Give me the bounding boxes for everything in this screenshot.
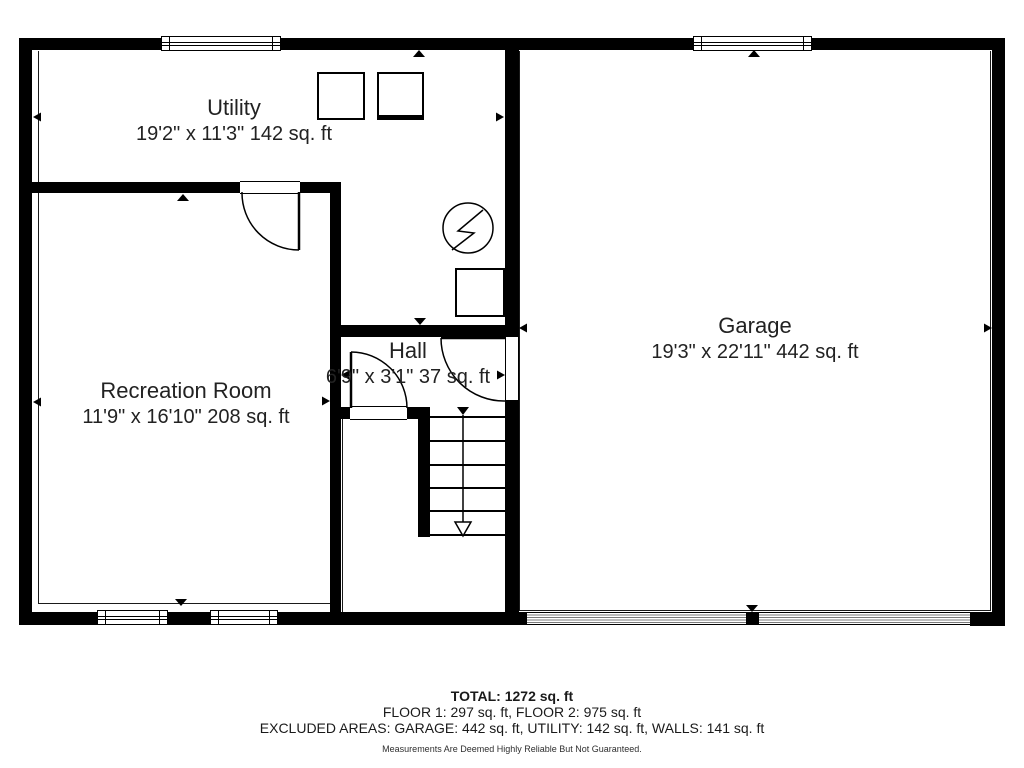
marker-garage-bottom-icon: [746, 605, 758, 612]
marker-utility-top-icon: [413, 50, 425, 57]
marker-garage-right-icon: [984, 324, 992, 333]
recreation-dims: 11'9" x 16'10" 208 sq. ft: [82, 404, 289, 430]
marker-rec-bottom-icon: [175, 599, 187, 606]
staircase: [430, 417, 505, 535]
room-label-hall: Hall 6'9" x 3'1" 37 sq. ft: [326, 338, 490, 390]
marker-garage-top-icon: [748, 50, 760, 57]
recreation-name: Recreation Room: [82, 378, 289, 404]
room-label-garage: Garage 19'3" x 22'11" 442 sq. ft: [651, 313, 858, 365]
hall-dims: 6'9" x 3'1" 37 sq. ft: [326, 364, 490, 390]
utility-name: Utility: [136, 95, 332, 121]
summary-excluded: EXCLUDED AREAS: GARAGE: 442 sq. ft, UTIL…: [0, 720, 1024, 736]
floor-plan: Utility 19'2" x 11'3" 142 sq. ft Garage …: [0, 0, 1024, 768]
marker-rec-left-icon: [33, 398, 41, 407]
door-utility-rec: [242, 192, 299, 250]
marker-garage-left-icon: [519, 324, 527, 333]
summary-disclaimer: Measurements Are Deemed Highly Reliable …: [0, 741, 1024, 757]
marker-utility-right-icon: [496, 113, 504, 122]
marker-hall-top-icon: [414, 318, 426, 325]
marker-utility-left-icon: [33, 113, 41, 122]
garage-dims: 19'3" x 22'11" 442 sq. ft: [651, 339, 858, 365]
water-heater-icon: [443, 203, 493, 253]
marker-rec-right-icon: [322, 397, 330, 406]
garage-name: Garage: [651, 313, 858, 339]
area-summary: TOTAL: 1272 sq. ft FLOOR 1: 297 sq. ft, …: [0, 688, 1024, 757]
hall-name: Hall: [326, 338, 490, 364]
marker-hall-right-icon: [497, 371, 505, 380]
stair-direction-arrow: [455, 407, 471, 536]
utility-dims: 19'2" x 11'3" 142 sq. ft: [136, 121, 332, 147]
room-label-utility: Utility 19'2" x 11'3" 142 sq. ft: [136, 95, 332, 147]
marker-rec-top-icon: [177, 194, 189, 201]
room-label-recreation: Recreation Room 11'9" x 16'10" 208 sq. f…: [82, 378, 289, 430]
summary-total: TOTAL: 1272 sq. ft: [0, 688, 1024, 704]
summary-floors: FLOOR 1: 297 sq. ft, FLOOR 2: 975 sq. ft: [0, 704, 1024, 720]
